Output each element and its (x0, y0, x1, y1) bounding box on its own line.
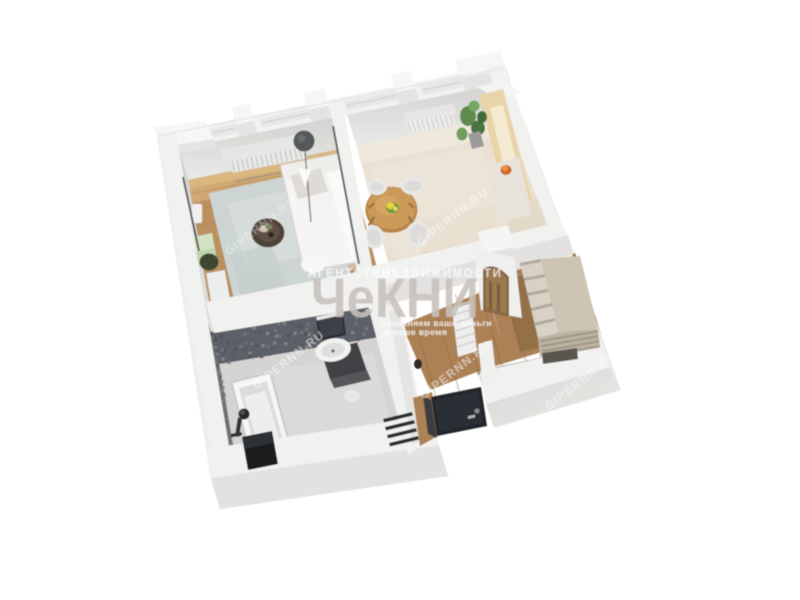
svg-text:и ваше время: и ваше время (384, 327, 447, 337)
